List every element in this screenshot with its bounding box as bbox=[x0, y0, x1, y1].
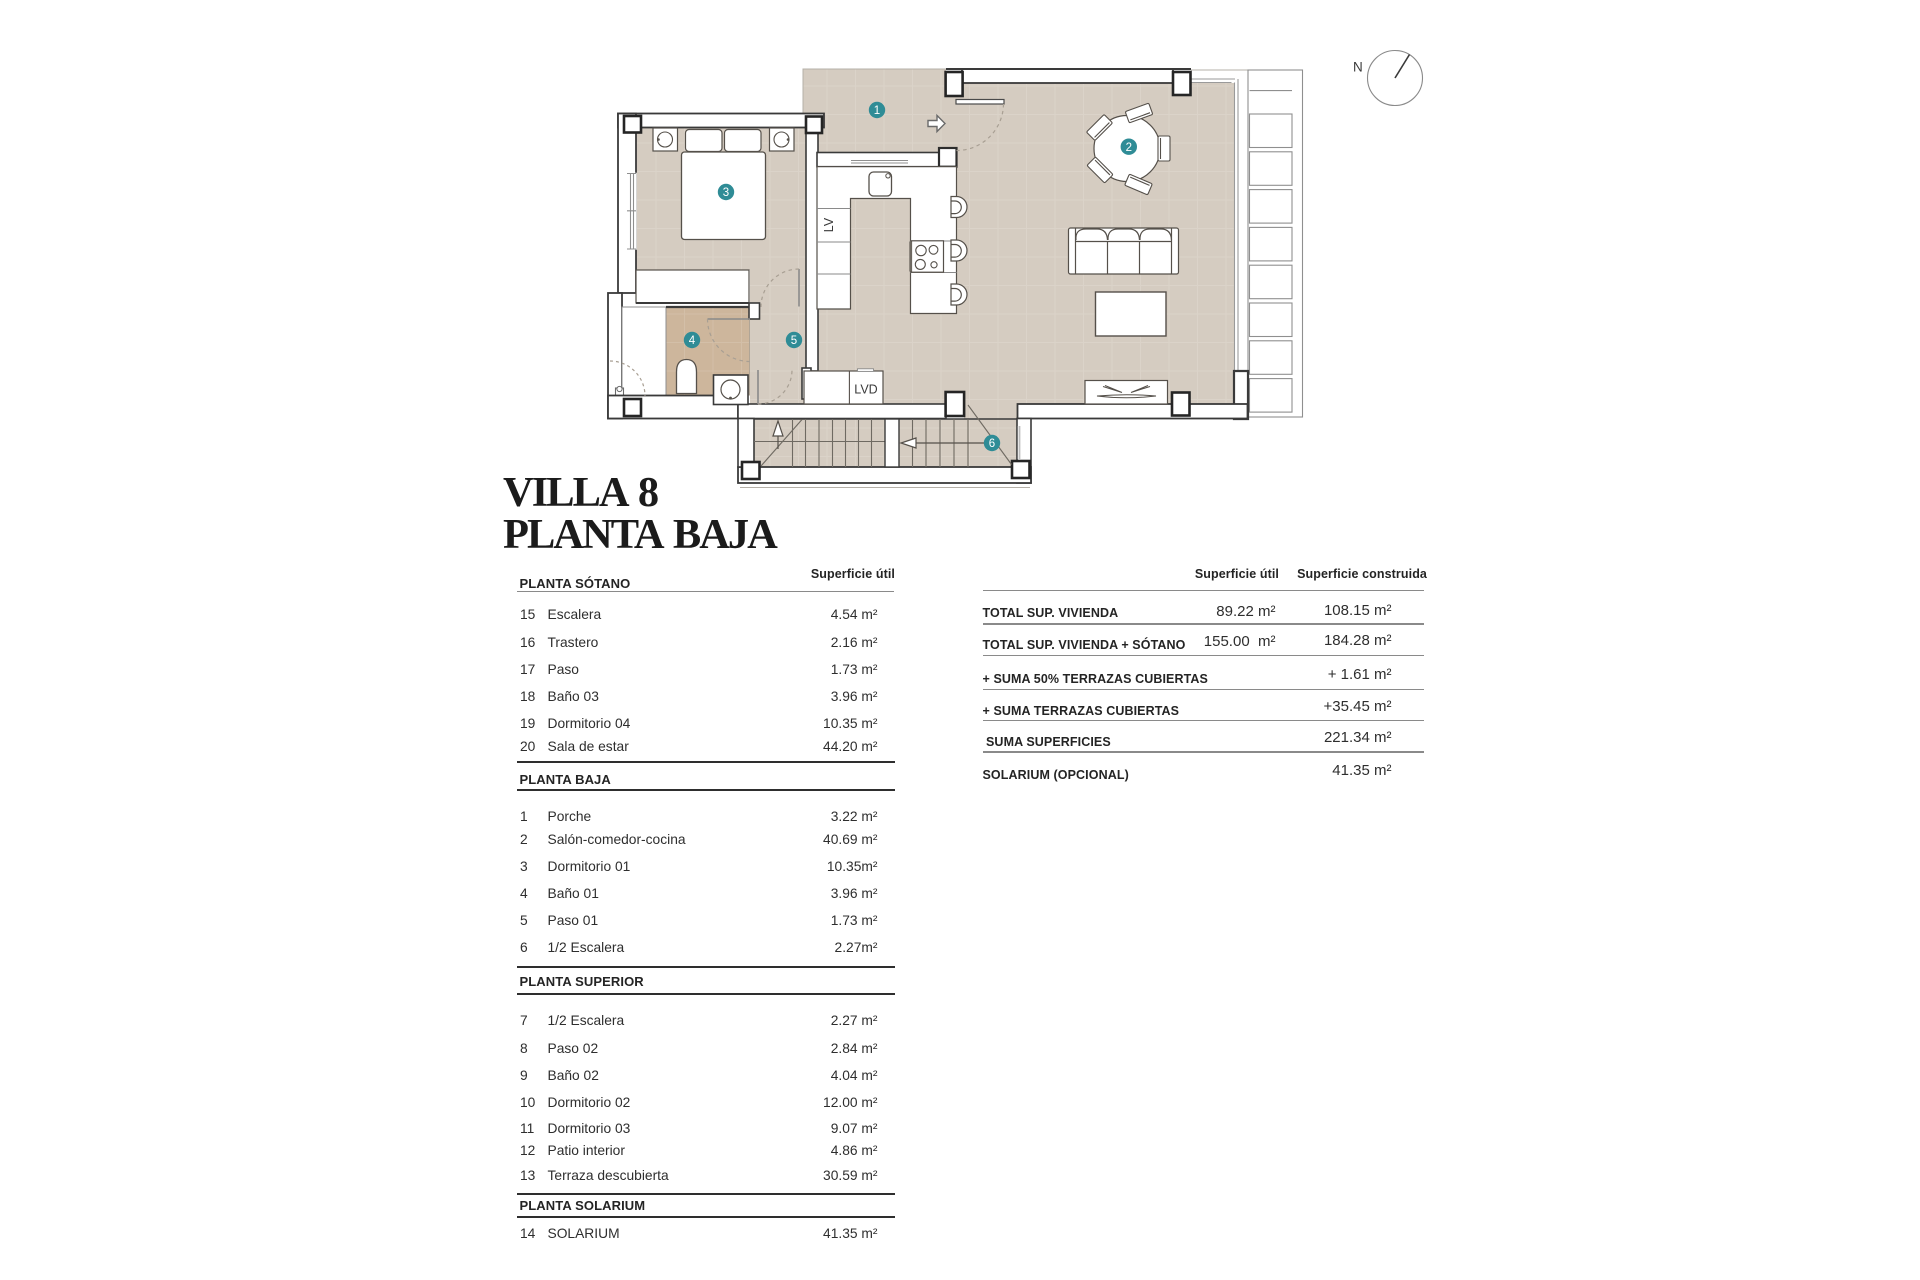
svg-text:LVD: LVD bbox=[854, 383, 877, 397]
svg-text:6: 6 bbox=[989, 438, 995, 450]
svg-text:1: 1 bbox=[874, 105, 880, 117]
svg-text:2: 2 bbox=[1126, 142, 1132, 154]
svg-text:N: N bbox=[1353, 60, 1363, 75]
svg-text:LV: LV bbox=[822, 217, 836, 232]
svg-text:5: 5 bbox=[791, 335, 797, 347]
svg-text:4: 4 bbox=[689, 335, 696, 347]
svg-text:3: 3 bbox=[723, 187, 729, 199]
